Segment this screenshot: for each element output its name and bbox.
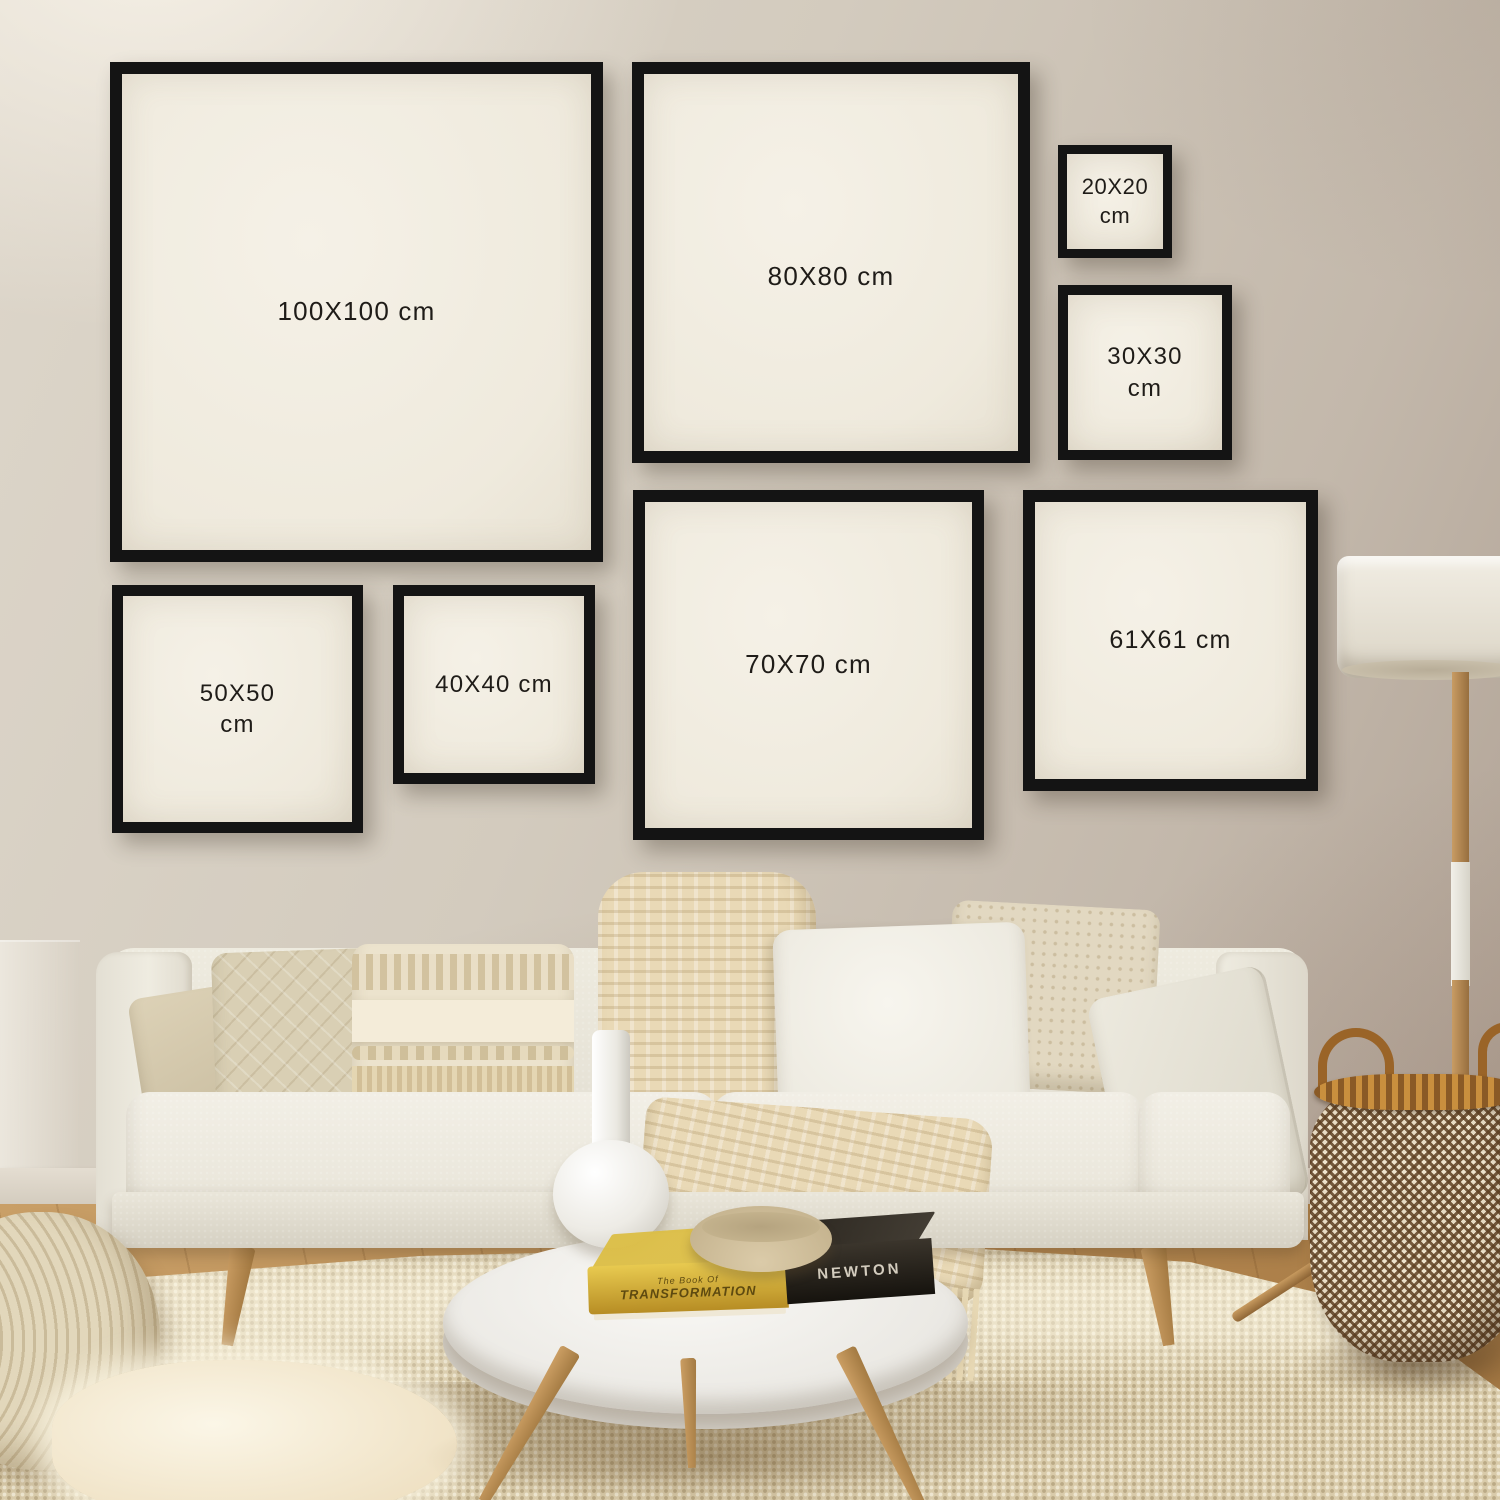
- frame-50x50: 50X50 cm: [112, 585, 363, 833]
- pillow-braid-band: [352, 954, 574, 990]
- size-text: 40X40 cm: [435, 669, 553, 700]
- frame-size-label: 50X50 cm: [200, 678, 275, 740]
- vase-neck: [592, 1030, 630, 1148]
- size-text: 100X100 cm: [278, 295, 436, 329]
- frame-size-label: 61X61 cm: [1109, 624, 1231, 657]
- basket-rim: [1314, 1074, 1500, 1110]
- size-text: 70X70 cm: [745, 648, 872, 682]
- living-room-frame-size-guide: 100X100 cm 80X80 cm 20X20 cm 30X30 cm 50…: [0, 0, 1500, 1500]
- frame-size-label: 70X70 cm: [745, 648, 872, 682]
- size-unit: cm: [1082, 202, 1149, 231]
- size-text: 61X61 cm: [1109, 624, 1231, 657]
- frame-100x100: 100X100 cm: [110, 62, 603, 562]
- size-text: 80X80 cm: [768, 260, 895, 294]
- size-text: 50X50: [200, 678, 275, 709]
- frame-size-label: 40X40 cm: [435, 669, 553, 700]
- frame-40x40: 40X40 cm: [393, 585, 595, 784]
- frame-61x61: 61X61 cm: [1023, 490, 1318, 791]
- size-unit: cm: [200, 709, 275, 740]
- pillow-bobble-row: [352, 1046, 574, 1060]
- size-unit: cm: [1107, 373, 1182, 404]
- wall-light-glare: [0, 940, 80, 1187]
- book-title-text: TRANSFORMATION: [620, 1282, 757, 1302]
- frame-size-label: 20X20 cm: [1082, 173, 1149, 230]
- frame-20x20: 20X20 cm: [1058, 145, 1172, 258]
- pillow-shag-band: [352, 1000, 574, 1042]
- book-name-text: NEWTON: [817, 1260, 902, 1283]
- frame-70x70: 70X70 cm: [633, 490, 984, 840]
- woven-chevron-basket: [1310, 1080, 1500, 1362]
- bowl-interior: [702, 1212, 820, 1242]
- frame-size-label: 100X100 cm: [278, 295, 436, 329]
- lamp-pole-wood-upper: [1452, 672, 1469, 868]
- size-text: 30X30: [1107, 341, 1182, 372]
- frame-size-label: 80X80 cm: [768, 260, 895, 294]
- frame-size-label: 30X30 cm: [1107, 341, 1182, 403]
- lamp-pole-white-band: [1451, 862, 1470, 986]
- frame-80x80: 80X80 cm: [632, 62, 1030, 463]
- frame-30x30: 30X30 cm: [1058, 285, 1232, 460]
- size-text: 20X20: [1082, 173, 1149, 202]
